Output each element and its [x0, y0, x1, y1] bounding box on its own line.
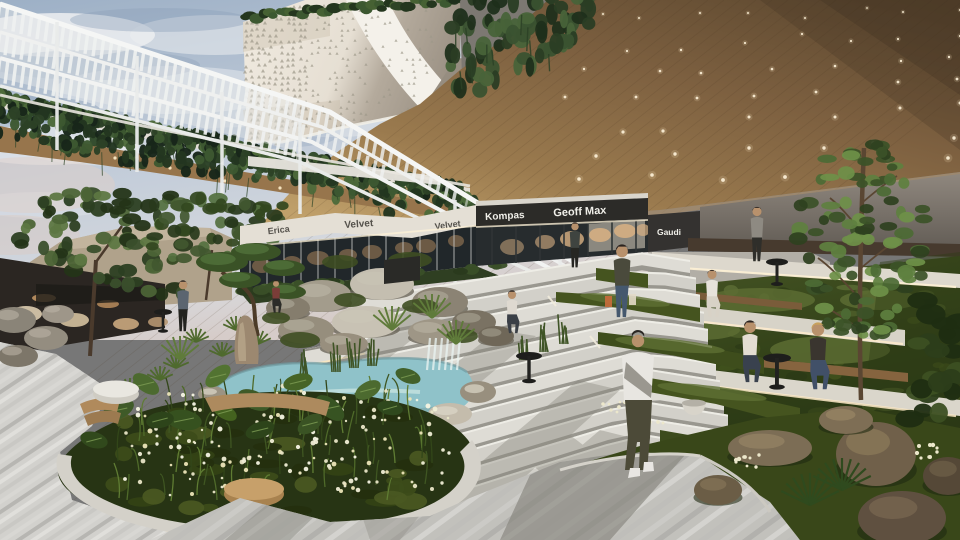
svg-text:Velvet: Velvet [344, 218, 374, 231]
svg-text:Kompas: Kompas [485, 210, 525, 223]
svg-text:Gaudi: Gaudi [657, 227, 681, 237]
